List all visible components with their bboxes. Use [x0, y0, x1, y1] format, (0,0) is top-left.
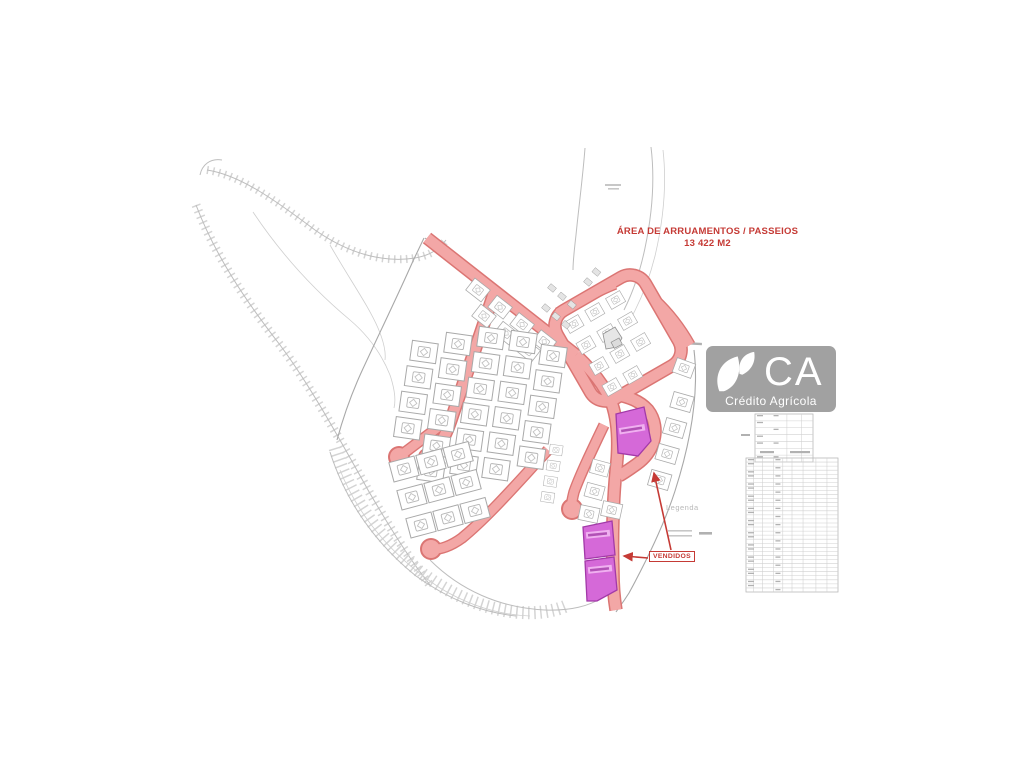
area-annotation-line2: 13 422 M2 — [600, 238, 815, 250]
site-plan-drawing — [0, 0, 1024, 768]
logo-initials: CA — [764, 351, 824, 393]
legend-samples — [668, 530, 712, 537]
area-tables — [741, 414, 838, 592]
site-plan-canvas: ÁREA DE ARRUAMENTOS / PASSEIOS 13 422 M2… — [0, 0, 1024, 768]
area-annotation-line1: ÁREA DE ARRUAMENTOS / PASSEIOS — [600, 226, 815, 238]
area-annotation: ÁREA DE ARRUAMENTOS / PASSEIOS 13 422 M2 — [600, 226, 815, 249]
vendidos-label: VENDIDOS — [649, 551, 695, 562]
credito-agricola-logo: CA Crédito Agrícola — [706, 346, 836, 412]
leaf-icon — [712, 350, 756, 394]
legend-title: Legenda — [666, 503, 699, 512]
logo-name: Crédito Agrícola — [706, 394, 836, 408]
